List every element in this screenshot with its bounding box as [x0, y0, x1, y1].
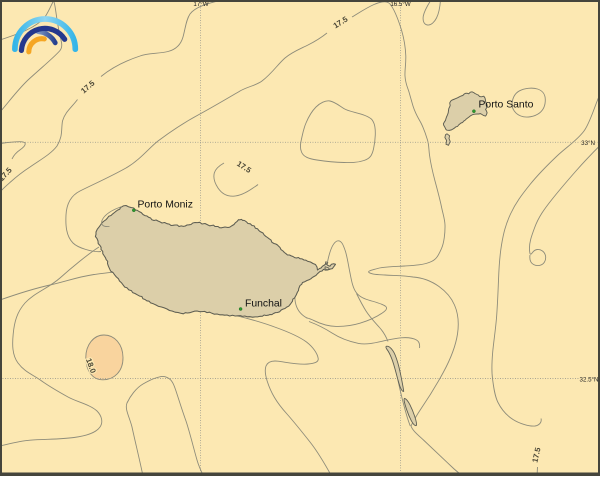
svg-text:Porto Moniz: Porto Moniz — [138, 200, 193, 211]
svg-text:Funchal: Funchal — [245, 299, 282, 310]
svg-text:Porto Santo: Porto Santo — [479, 100, 534, 111]
svg-text:33°N: 33°N — [581, 140, 595, 147]
svg-text:32.5°N: 32.5°N — [580, 376, 599, 383]
